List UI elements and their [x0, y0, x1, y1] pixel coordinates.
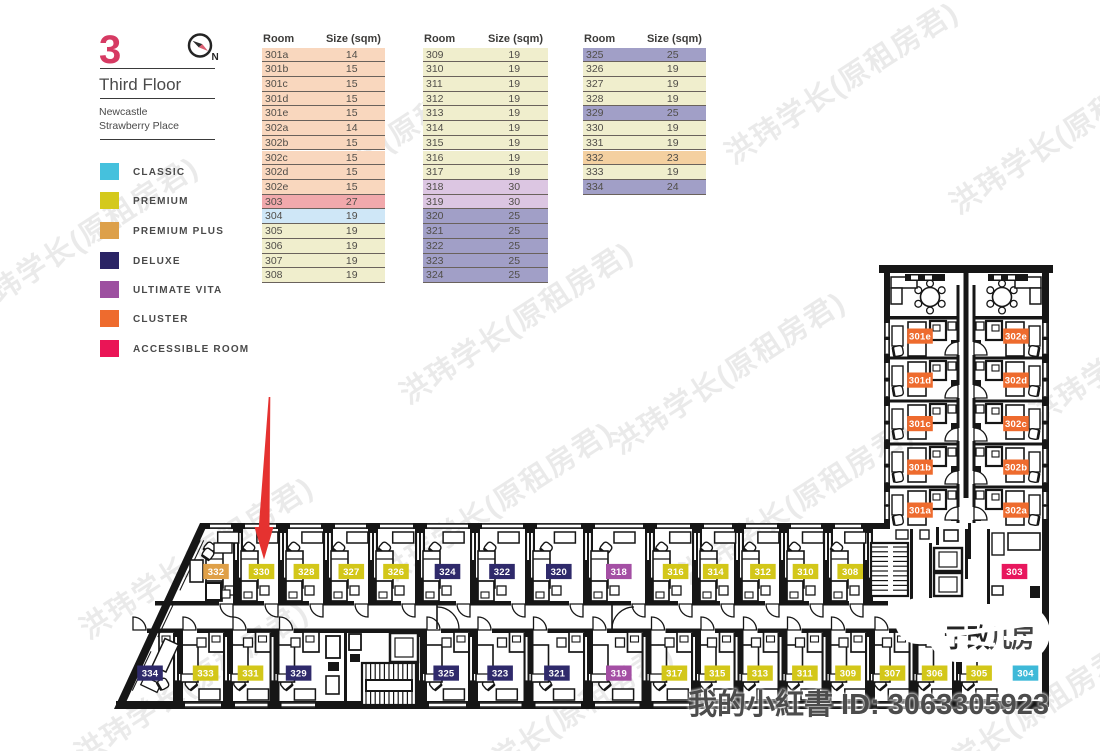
- svg-text:317: 317: [666, 669, 682, 680]
- svg-text:301c: 301c: [909, 419, 931, 430]
- svg-text:331: 331: [242, 669, 259, 680]
- svg-text:321: 321: [549, 669, 566, 680]
- svg-text:303: 303: [1006, 567, 1022, 578]
- svg-text:306: 306: [926, 669, 942, 680]
- svg-text:302a: 302a: [1005, 506, 1027, 517]
- svg-text:332: 332: [208, 567, 224, 578]
- svg-text:301e: 301e: [909, 332, 931, 343]
- svg-text:311: 311: [797, 669, 813, 680]
- svg-text:302d: 302d: [1005, 376, 1027, 387]
- svg-text:329: 329: [290, 669, 306, 680]
- svg-text:330: 330: [253, 567, 269, 578]
- svg-text:319: 319: [611, 669, 627, 680]
- svg-text:302e: 302e: [1005, 332, 1027, 343]
- svg-text:310: 310: [797, 567, 813, 578]
- svg-text:313: 313: [752, 669, 768, 680]
- svg-text:324: 324: [439, 567, 456, 578]
- svg-text:333: 333: [197, 669, 213, 680]
- svg-text:328: 328: [298, 567, 314, 578]
- svg-text:301a: 301a: [909, 506, 931, 517]
- svg-text:327: 327: [343, 567, 359, 578]
- svg-text:309: 309: [840, 669, 856, 680]
- svg-text:325: 325: [438, 669, 455, 680]
- svg-text:304: 304: [1017, 669, 1034, 680]
- svg-text:307: 307: [884, 669, 900, 680]
- svg-text:302b: 302b: [1005, 463, 1027, 474]
- svg-text:326: 326: [388, 567, 404, 578]
- svg-text:305: 305: [971, 669, 988, 680]
- svg-text:308: 308: [842, 567, 858, 578]
- svg-text:322: 322: [494, 567, 510, 578]
- svg-text:315: 315: [709, 669, 726, 680]
- svg-text:314: 314: [707, 567, 724, 578]
- svg-text:312: 312: [755, 567, 771, 578]
- svg-text:301b: 301b: [909, 463, 931, 474]
- svg-text:334: 334: [142, 669, 159, 680]
- svg-text:316: 316: [667, 567, 683, 578]
- svg-text:323: 323: [492, 669, 508, 680]
- svg-text:320: 320: [551, 567, 567, 578]
- svg-text:302c: 302c: [1005, 419, 1027, 430]
- svg-text:301d: 301d: [909, 376, 931, 387]
- svg-text:318: 318: [611, 567, 627, 578]
